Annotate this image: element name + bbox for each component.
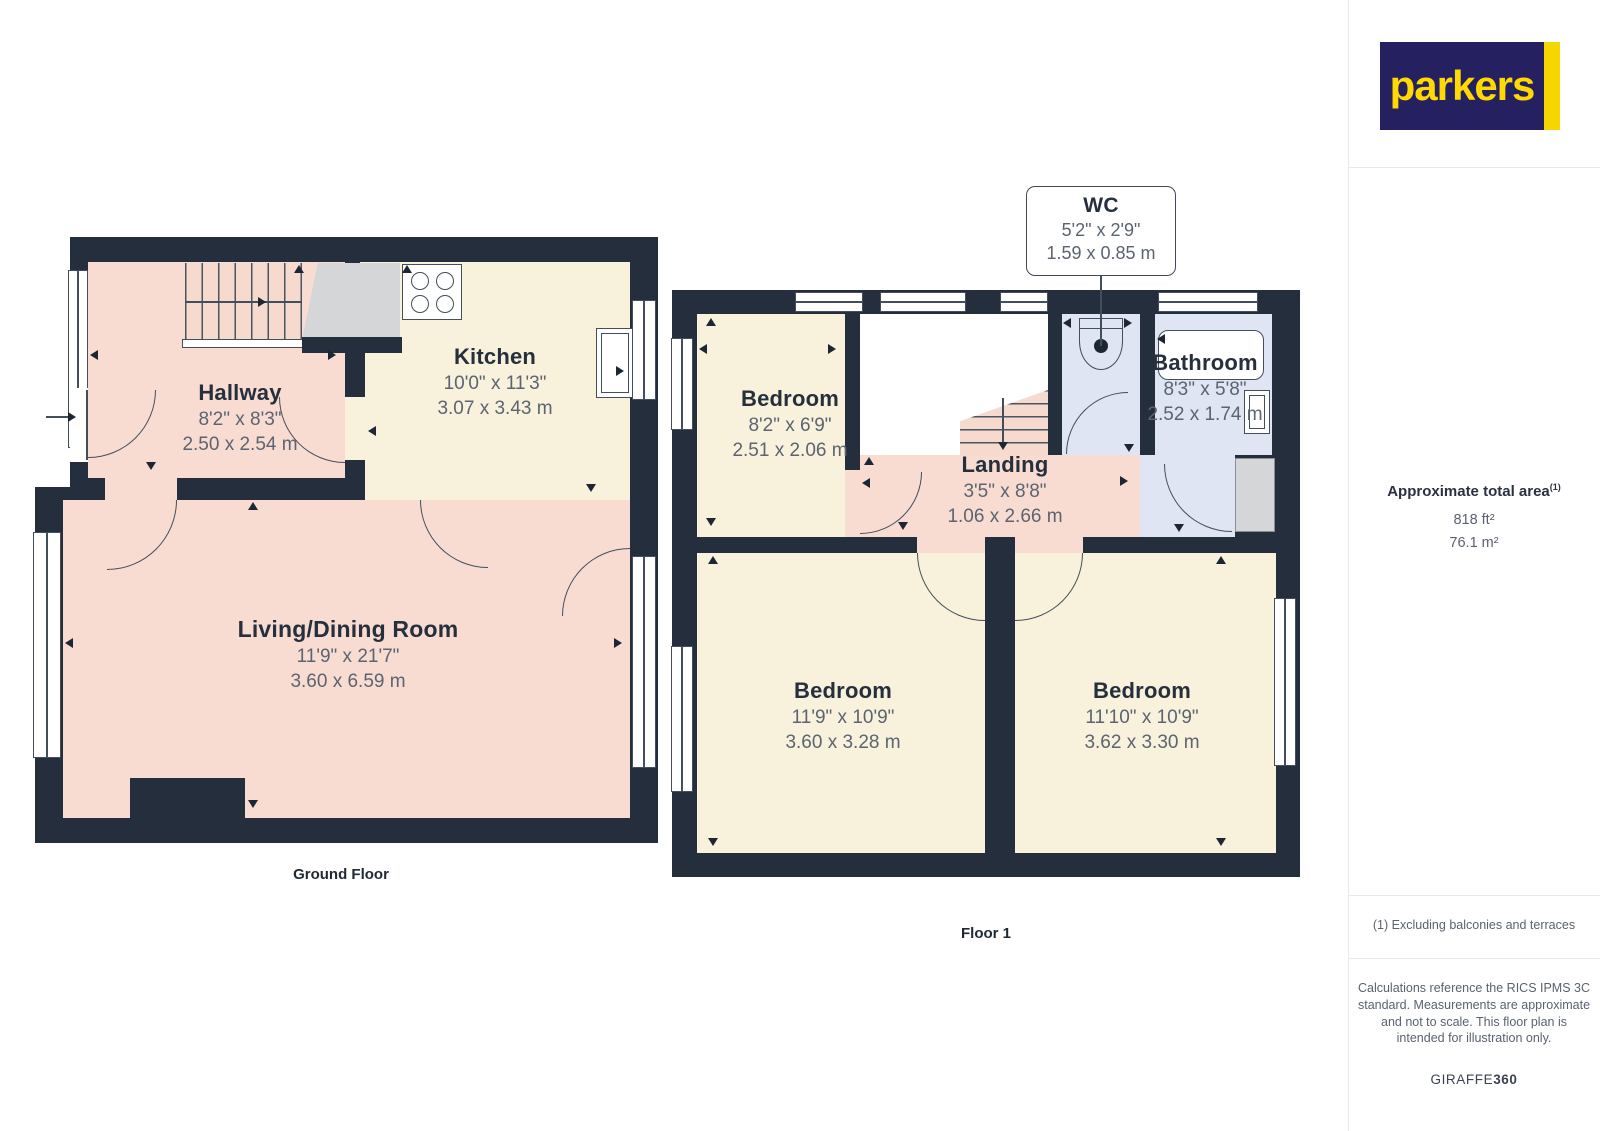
window xyxy=(1000,292,1048,312)
measure-arrow xyxy=(1120,476,1128,486)
measure-arrow xyxy=(1063,318,1071,328)
room-name: Bathroom xyxy=(1147,350,1262,376)
measure-arrow xyxy=(368,426,376,436)
understair-area xyxy=(302,263,400,340)
room-name: Bedroom xyxy=(1084,678,1199,704)
door-opening xyxy=(1015,537,1083,553)
door-opening xyxy=(105,478,177,500)
wc-callout: WC 5'2" x 2'9" 1.59 x 0.85 m xyxy=(1026,186,1176,276)
disclaimer-text: Calculations reference the RICS IPMS 3C … xyxy=(1356,980,1592,1047)
room-dim-imperial: 10'0" x 11'3" xyxy=(437,373,552,395)
kitchen-sink-icon xyxy=(596,328,634,398)
door-opening xyxy=(345,397,365,460)
stair-direction-arrow xyxy=(998,442,1008,450)
logo-yellow-bar xyxy=(1544,42,1560,130)
door-opening xyxy=(917,537,985,553)
divider xyxy=(1348,958,1600,959)
measure-arrow xyxy=(699,344,707,354)
wall-segment xyxy=(1048,314,1062,455)
wall-segment xyxy=(302,337,402,353)
room-name: WC xyxy=(1027,194,1175,218)
measure-arrow xyxy=(1216,838,1226,846)
room-name: Landing xyxy=(947,452,1062,478)
divider xyxy=(1348,895,1600,896)
room-name: Living/Dining Room xyxy=(238,616,459,643)
total-area-title: Approximate total area(1) xyxy=(1348,482,1600,500)
measure-arrow xyxy=(402,265,412,273)
sink-basin xyxy=(601,333,629,393)
total-area-footnote-marker: (1) xyxy=(1550,482,1561,492)
room-dim-imperial: 11'9" x 21'7" xyxy=(238,646,459,668)
wall-segment xyxy=(345,353,365,397)
burner-icon xyxy=(411,272,429,290)
room-dim-metric: 3.62 x 3.30 m xyxy=(1084,732,1199,754)
room-label-landing: Landing 3'5" x 8'8" 1.06 x 2.66 m xyxy=(947,452,1062,529)
room-dim-metric: 1.06 x 2.66 m xyxy=(947,506,1062,528)
window xyxy=(671,338,693,430)
room-name: Bedroom xyxy=(785,678,900,704)
staircase-up-icon xyxy=(185,263,302,345)
room-dim-imperial: 8'2" x 6'9" xyxy=(732,415,847,437)
parkers-logo-text: parkers xyxy=(1380,42,1544,130)
window xyxy=(1274,598,1296,766)
room-dim-imperial: 3'5" x 8'8" xyxy=(947,481,1062,503)
measure-arrow xyxy=(90,350,98,360)
total-area-imperial: 818 ft² xyxy=(1348,512,1600,528)
measure-arrow xyxy=(294,265,304,273)
room-label-hallway: Hallway 8'2" x 8'3" 2.50 x 2.54 m xyxy=(182,380,297,457)
window xyxy=(632,300,656,400)
floor-caption-ground: Ground Floor xyxy=(293,866,389,883)
stair-rail xyxy=(182,339,314,348)
total-area-label: Approximate total area xyxy=(1387,483,1550,500)
room-dim-metric: 2.52 x 1.74 m xyxy=(1147,404,1262,426)
window xyxy=(632,556,656,768)
credit-main: GIRAFFE xyxy=(1430,1072,1493,1087)
room-label-living-dining: Living/Dining Room 11'9" x 21'7" 3.60 x … xyxy=(238,616,459,694)
room-label-bedroom-right: Bedroom 11'10" x 10'9" 3.62 x 3.30 m xyxy=(1084,678,1199,755)
window xyxy=(33,532,61,758)
measure-arrow xyxy=(864,457,874,465)
measure-arrow xyxy=(614,638,622,648)
callout-connector-line xyxy=(1100,276,1102,346)
measure-arrow xyxy=(1157,334,1165,344)
total-area-metric: 76.1 m² xyxy=(1348,535,1600,551)
measure-arrow xyxy=(248,800,258,808)
door-opening xyxy=(420,478,488,500)
measure-arrow xyxy=(862,478,870,488)
window xyxy=(880,292,966,312)
wall-segment xyxy=(697,537,917,553)
measure-arrow xyxy=(1124,318,1132,328)
room-dim-metric: 2.51 x 2.06 m xyxy=(732,440,847,462)
entry-arrow-icon xyxy=(68,412,76,422)
measure-arrow xyxy=(1124,444,1134,452)
divider xyxy=(1348,167,1600,168)
window xyxy=(795,292,863,312)
wall-segment xyxy=(1083,537,1277,553)
room-dim-imperial: 8'2" x 8'3" xyxy=(182,409,297,431)
room-dim-imperial: 11'10" x 10'9" xyxy=(1084,707,1199,729)
chimney-breast xyxy=(130,778,245,818)
room-label-bathroom: Bathroom 8'3" x 5'8" 2.52 x 1.74 m xyxy=(1147,350,1262,427)
measure-arrow xyxy=(706,518,716,526)
measure-arrow xyxy=(65,638,73,648)
measure-arrow xyxy=(898,522,908,530)
room-label-kitchen: Kitchen 10'0" x 11'3" 3.07 x 3.43 m xyxy=(437,344,552,421)
burner-icon xyxy=(411,295,429,313)
measure-arrow xyxy=(328,350,336,360)
measure-arrow xyxy=(706,318,716,326)
room-dim-metric: 2.50 x 2.54 m xyxy=(182,434,297,456)
room-dim-imperial: 11'9" x 10'9" xyxy=(785,707,900,729)
room-dim-metric: 3.07 x 3.43 m xyxy=(437,398,552,420)
room-label-bedroom-top: Bedroom 8'2" x 6'9" 2.51 x 2.06 m xyxy=(732,386,847,463)
measure-arrow xyxy=(708,838,718,846)
measure-arrow xyxy=(1174,524,1184,532)
measure-arrow xyxy=(1216,556,1226,564)
wall-segment xyxy=(345,460,365,500)
stair-direction-line xyxy=(1002,398,1004,444)
sidebar-border xyxy=(1348,0,1349,1131)
room-name: Kitchen xyxy=(437,344,552,370)
parkers-logo: parkers xyxy=(1380,42,1560,130)
stair-direction-arrow xyxy=(258,297,266,307)
chimney-block xyxy=(1235,458,1275,532)
burner-icon xyxy=(436,295,454,313)
floorplan-page: Hallway 8'2" x 8'3" 2.50 x 2.54 m Kitche… xyxy=(0,0,1600,1131)
measure-arrow xyxy=(586,484,596,492)
wall-segment xyxy=(985,537,1015,853)
stair-mid-line xyxy=(185,301,302,303)
room-dim-imperial: 8'3" x 5'8" xyxy=(1147,379,1262,401)
room-dim-imperial: 5'2" x 2'9" xyxy=(1027,220,1175,241)
measure-arrow xyxy=(616,366,624,376)
room-dim-metric: 1.59 x 0.85 m xyxy=(1027,243,1175,264)
room-dim-metric: 3.60 x 6.59 m xyxy=(238,671,459,693)
window xyxy=(671,646,693,792)
room-name: Hallway xyxy=(182,380,297,406)
room-label-bedroom-left: Bedroom 11'9" x 10'9" 3.60 x 3.28 m xyxy=(785,678,900,755)
door-opening xyxy=(845,470,860,537)
measure-arrow xyxy=(248,502,258,510)
burner-icon xyxy=(436,272,454,290)
footnote-text: (1) Excluding balconies and terraces xyxy=(1348,918,1600,932)
credit-bold: 360 xyxy=(1493,1072,1517,1087)
window xyxy=(1158,292,1258,312)
floor-caption-1: Floor 1 xyxy=(961,925,1011,942)
giraffe360-credit: GIRAFFE360 xyxy=(1348,1072,1600,1087)
measure-arrow xyxy=(146,462,156,470)
measure-arrow xyxy=(708,556,718,564)
room-dim-metric: 3.60 x 3.28 m xyxy=(785,732,900,754)
room-name: Bedroom xyxy=(732,386,847,412)
entry-arrow-icon xyxy=(46,416,70,418)
measure-arrow xyxy=(828,344,836,354)
